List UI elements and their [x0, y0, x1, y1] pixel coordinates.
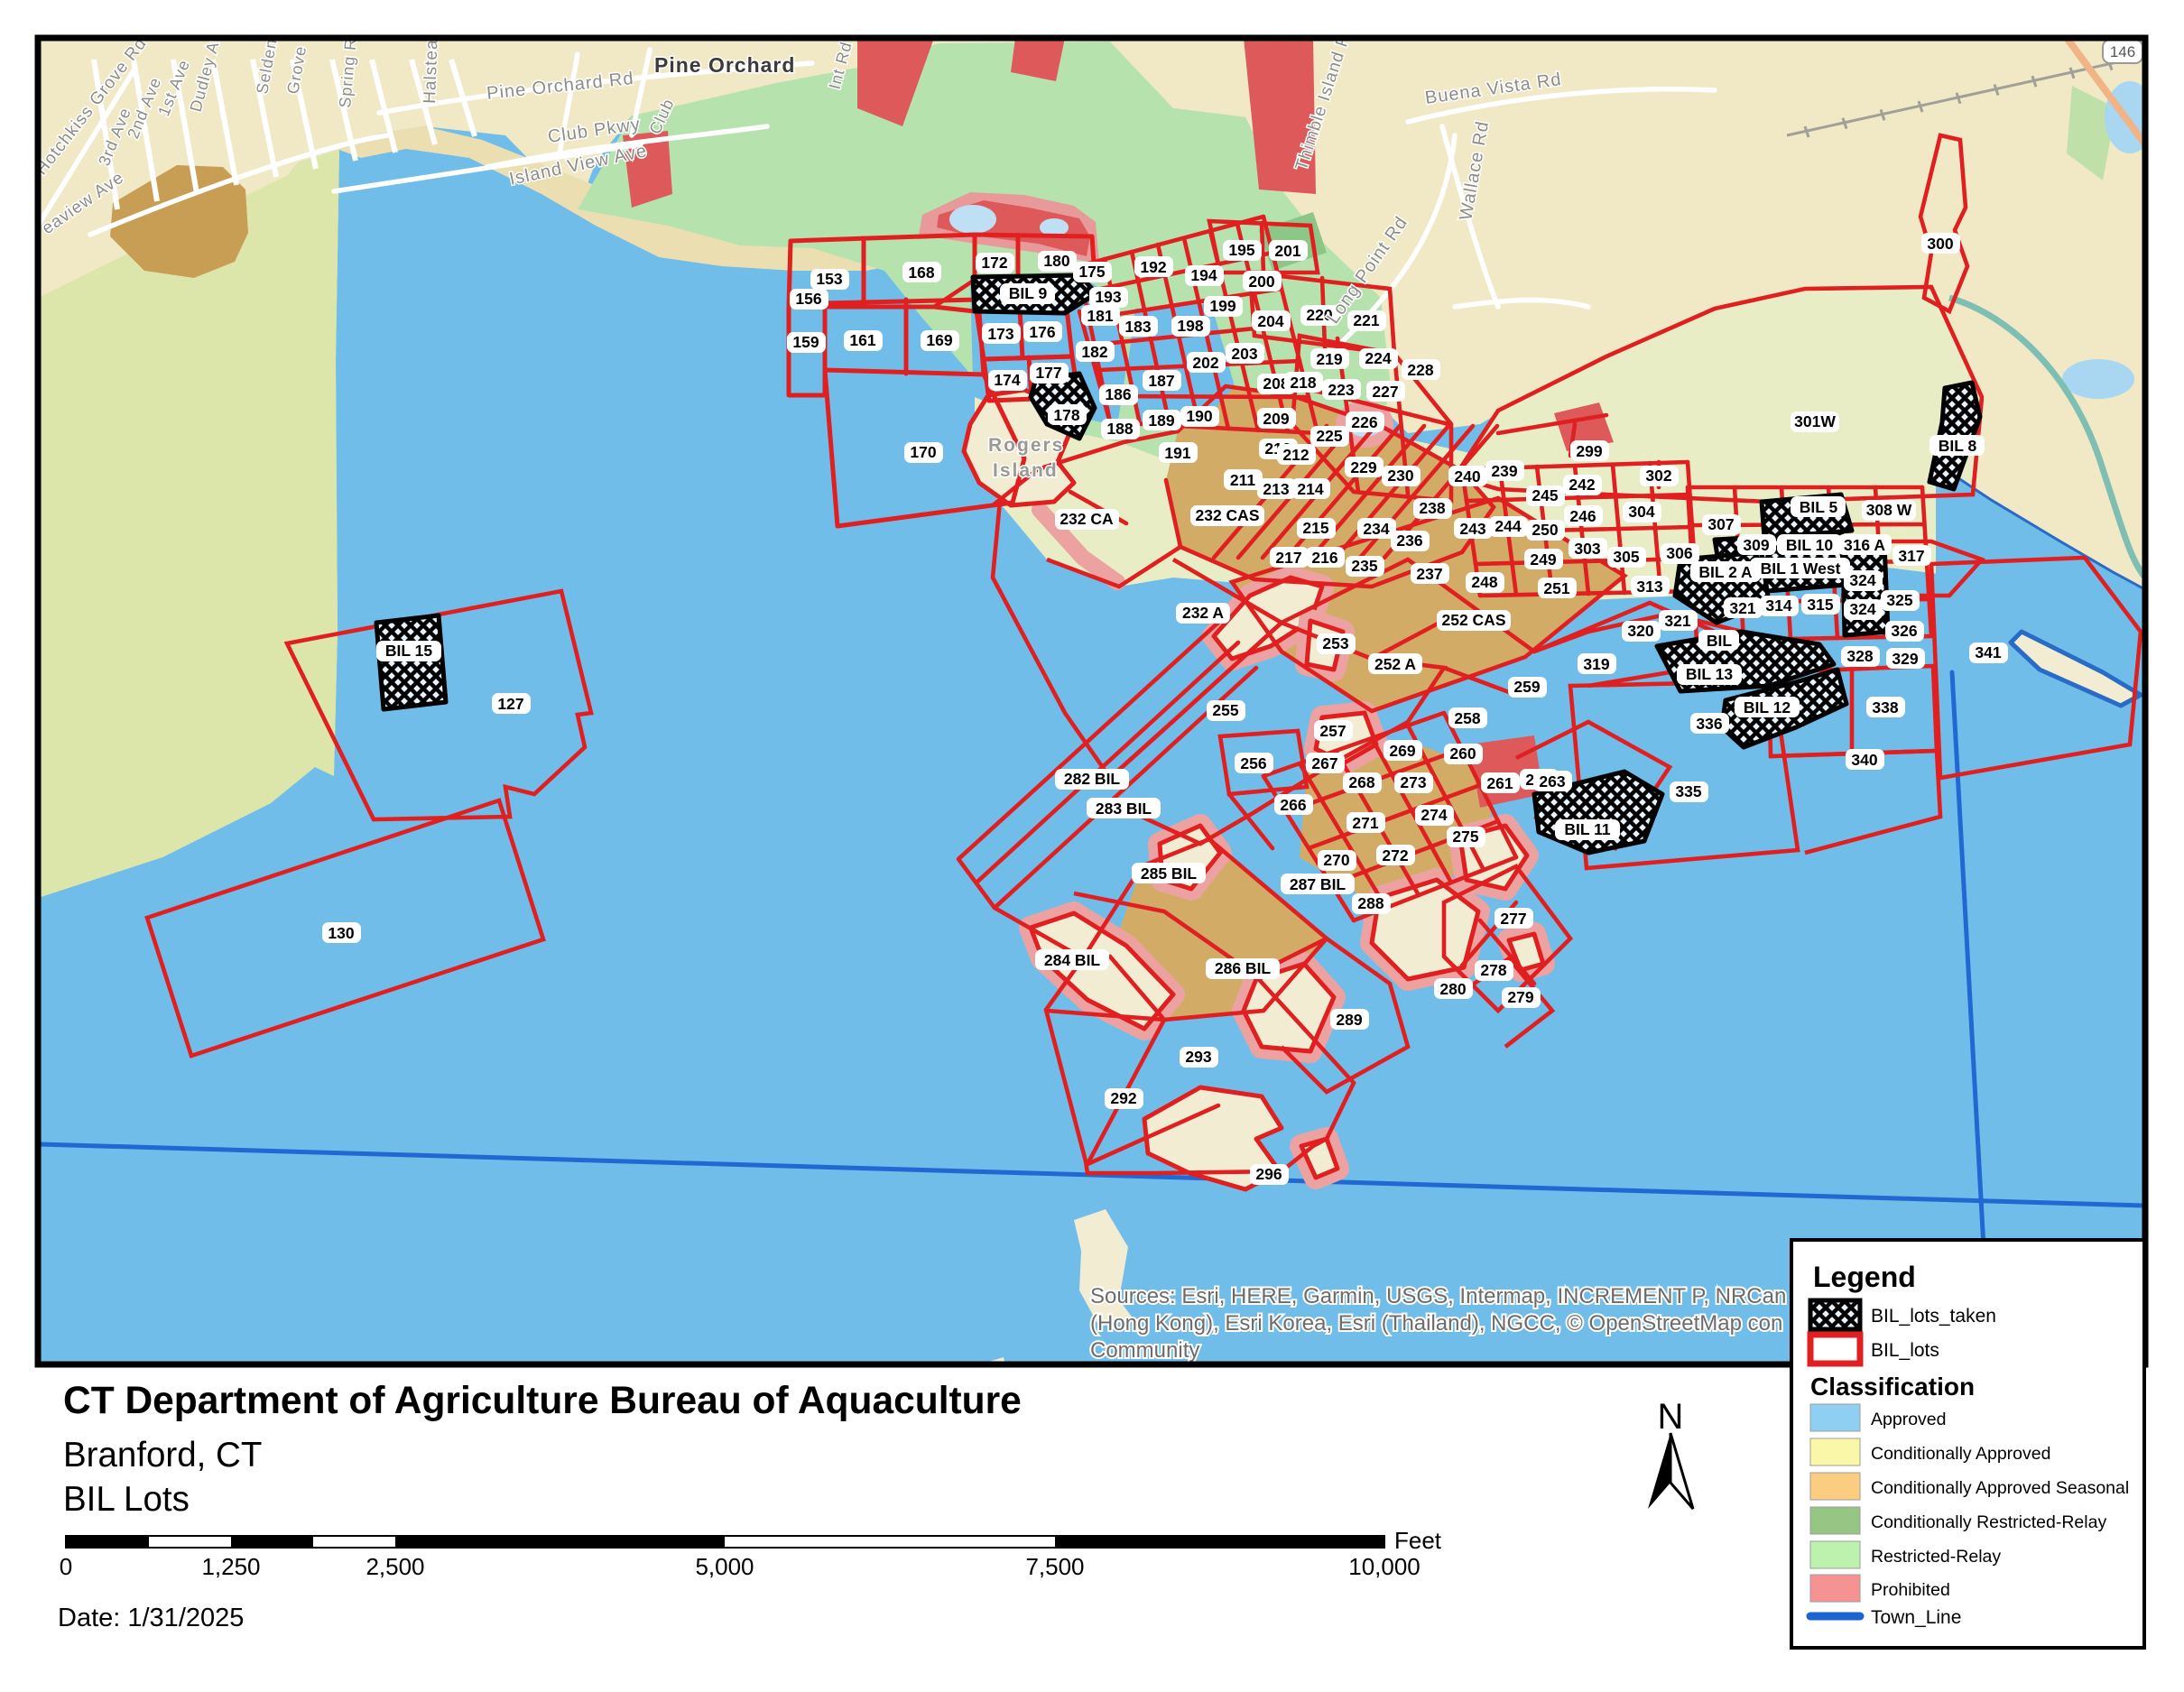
svg-text:Town_Line: Town_Line	[1871, 1607, 1961, 1628]
svg-text:325: 325	[1886, 591, 1912, 609]
svg-text:180: 180	[1043, 252, 1069, 270]
svg-text:181: 181	[1087, 307, 1113, 325]
svg-text:240: 240	[1454, 467, 1480, 485]
svg-text:169: 169	[926, 331, 952, 349]
svg-text:176: 176	[1029, 323, 1055, 341]
svg-text:0: 0	[60, 1553, 72, 1580]
svg-text:BIL 2 A: BIL 2 A	[1698, 563, 1753, 581]
svg-text:194: 194	[1190, 266, 1217, 284]
svg-text:275: 275	[1452, 828, 1478, 846]
svg-text:271: 271	[1352, 814, 1378, 832]
svg-text:229: 229	[1350, 458, 1376, 476]
svg-text:161: 161	[849, 331, 875, 349]
svg-text:326: 326	[1891, 622, 1917, 640]
svg-text:306: 306	[1666, 544, 1692, 562]
svg-text:195: 195	[1228, 241, 1254, 259]
svg-text:187: 187	[1148, 372, 1174, 390]
svg-text:218: 218	[1290, 374, 1316, 392]
svg-text:198: 198	[1177, 317, 1203, 335]
svg-text:BIL Lots: BIL Lots	[63, 1480, 190, 1519]
svg-text:7,500: 7,500	[1025, 1553, 1084, 1580]
svg-text:Sources: Esri, HERE, Garmin, U: Sources: Esri, HERE, Garmin, USGS, Inter…	[1090, 1284, 1786, 1308]
svg-text:203: 203	[1231, 345, 1257, 363]
svg-text:BIL 11: BIL 11	[1564, 820, 1611, 838]
svg-text:Rogers: Rogers	[988, 435, 1064, 456]
svg-text:317: 317	[1898, 547, 1924, 565]
svg-text:246: 246	[1569, 507, 1596, 525]
svg-text:190: 190	[1186, 407, 1212, 425]
svg-text:287 BIL: 287 BIL	[1290, 875, 1346, 893]
svg-text:288: 288	[1357, 894, 1384, 912]
svg-text:266: 266	[1280, 796, 1306, 814]
svg-text:268: 268	[1348, 773, 1374, 791]
svg-text:282 BIL: 282 BIL	[1064, 770, 1121, 788]
svg-text:CT Department of Agriculture B: CT Department of Agriculture Bureau of A…	[63, 1380, 1022, 1422]
svg-text:224: 224	[1365, 349, 1391, 367]
svg-text:336: 336	[1696, 715, 1722, 733]
svg-text:321: 321	[1664, 612, 1690, 630]
svg-text:202: 202	[1192, 354, 1218, 372]
svg-text:301W: 301W	[1794, 412, 1836, 430]
svg-text:10,000: 10,000	[1348, 1553, 1421, 1580]
svg-text:199: 199	[1209, 297, 1235, 315]
svg-text:292: 292	[1110, 1089, 1136, 1107]
svg-text:(Hong Kong), Esri Korea, Esri: (Hong Kong), Esri Korea, Esri (Thailand)…	[1090, 1311, 1782, 1336]
svg-text:234: 234	[1363, 520, 1389, 538]
svg-text:286 BIL: 286 BIL	[1215, 959, 1272, 977]
svg-text:307: 307	[1707, 515, 1734, 533]
svg-text:BIL_lots_taken: BIL_lots_taken	[1871, 1306, 1996, 1327]
svg-text:232 CA: 232 CA	[1060, 510, 1114, 528]
svg-text:228: 228	[1407, 361, 1433, 379]
svg-text:324: 324	[1849, 600, 1875, 618]
svg-text:252 CAS: 252 CAS	[1441, 611, 1505, 629]
svg-text:299: 299	[1576, 442, 1602, 460]
svg-text:156: 156	[795, 290, 821, 308]
svg-text:280: 280	[1439, 980, 1466, 998]
svg-text:235: 235	[1351, 557, 1377, 575]
svg-text:Conditionally Approved Seasona: Conditionally Approved Seasonal	[1871, 1478, 2129, 1498]
svg-text:227: 227	[1372, 383, 1398, 401]
svg-text:293: 293	[1185, 1048, 1211, 1066]
svg-text:219: 219	[1316, 350, 1342, 368]
svg-text:189: 189	[1148, 411, 1174, 430]
svg-text:270: 270	[1323, 851, 1349, 869]
svg-text:245: 245	[1532, 486, 1558, 504]
svg-text:284 BIL: 284 BIL	[1044, 951, 1101, 969]
svg-text:300: 300	[1927, 235, 1953, 253]
svg-text:277: 277	[1500, 910, 1526, 928]
svg-text:213: 213	[1263, 480, 1289, 498]
svg-text:Date: 1/31/2025: Date: 1/31/2025	[58, 1604, 244, 1632]
svg-text:261: 261	[1486, 774, 1513, 792]
svg-text:253: 253	[1322, 634, 1348, 652]
svg-text:315: 315	[1807, 596, 1833, 614]
svg-text:225: 225	[1316, 427, 1342, 445]
svg-text:252 A: 252 A	[1374, 655, 1416, 673]
svg-text:255: 255	[1212, 701, 1238, 719]
svg-text:309: 309	[1743, 536, 1769, 554]
svg-text:BIL: BIL	[1707, 632, 1733, 650]
svg-text:146: 146	[2110, 43, 2135, 60]
svg-text:242: 242	[1569, 476, 1595, 494]
svg-text:153: 153	[816, 270, 842, 288]
svg-text:216: 216	[1311, 549, 1337, 567]
svg-text:BIL_lots: BIL_lots	[1871, 1340, 1939, 1361]
svg-text:212: 212	[1282, 446, 1309, 464]
svg-text:335: 335	[1675, 782, 1701, 800]
svg-text:314: 314	[1765, 596, 1791, 615]
svg-text:Prohibited: Prohibited	[1871, 1580, 1950, 1600]
svg-text:273: 273	[1400, 773, 1426, 791]
svg-text:340: 340	[1851, 751, 1877, 769]
svg-text:177: 177	[1035, 364, 1061, 382]
svg-text:182: 182	[1081, 343, 1107, 361]
svg-text:320: 320	[1627, 622, 1653, 640]
svg-text:174: 174	[994, 371, 1020, 389]
svg-text:308 W: 308 W	[1866, 501, 1912, 519]
svg-text:BIL 5: BIL 5	[1800, 498, 1838, 516]
svg-text:159: 159	[792, 333, 819, 351]
svg-text:BIL 12: BIL 12	[1744, 698, 1791, 717]
svg-text:226: 226	[1351, 413, 1377, 431]
svg-text:Restricted-Relay: Restricted-Relay	[1871, 1547, 2001, 1567]
svg-text:303: 303	[1574, 540, 1600, 558]
svg-text:249: 249	[1530, 550, 1556, 569]
svg-text:267: 267	[1311, 754, 1337, 772]
svg-text:BIL 10: BIL 10	[1786, 536, 1833, 554]
svg-text:272: 272	[1382, 846, 1408, 864]
svg-text:338: 338	[1872, 698, 1898, 717]
svg-text:192: 192	[1140, 258, 1166, 276]
svg-text:313: 313	[1636, 578, 1662, 596]
svg-text:214: 214	[1297, 480, 1323, 498]
svg-text:283 BIL: 283 BIL	[1096, 800, 1152, 818]
svg-text:232 A: 232 A	[1182, 604, 1224, 622]
svg-text:2,500: 2,500	[366, 1553, 424, 1580]
svg-text:Community: Community	[1090, 1338, 1199, 1363]
svg-text:274: 274	[1421, 806, 1447, 824]
svg-text:259: 259	[1513, 678, 1540, 696]
svg-text:211: 211	[1230, 471, 1255, 489]
svg-text:257: 257	[1319, 722, 1346, 740]
svg-text:258: 258	[1454, 709, 1480, 727]
svg-text:289: 289	[1336, 1011, 1362, 1029]
svg-text:244: 244	[1495, 517, 1521, 535]
svg-text:250: 250	[1532, 521, 1558, 539]
svg-text:215: 215	[1302, 519, 1328, 537]
svg-text:Conditionally Restricted-Relay: Conditionally Restricted-Relay	[1871, 1512, 2106, 1532]
svg-text:188: 188	[1106, 420, 1133, 438]
svg-text:296: 296	[1255, 1165, 1282, 1183]
svg-text:304: 304	[1628, 503, 1654, 521]
svg-text:183: 183	[1124, 318, 1151, 336]
svg-text:175: 175	[1078, 263, 1105, 281]
svg-text:232 CAS: 232 CAS	[1195, 506, 1259, 524]
svg-text:173: 173	[987, 325, 1013, 343]
svg-text:178: 178	[1053, 406, 1079, 424]
svg-text:127: 127	[497, 695, 523, 713]
svg-text:239: 239	[1491, 462, 1517, 480]
svg-text:BIL 13: BIL 13	[1686, 665, 1733, 683]
svg-text:191: 191	[1164, 444, 1190, 462]
svg-text:Island: Island	[993, 460, 1059, 481]
svg-text:243: 243	[1459, 520, 1485, 538]
svg-text:1,250: 1,250	[201, 1553, 260, 1580]
svg-text:Approved: Approved	[1871, 1410, 1946, 1429]
svg-text:Pine Orchard: Pine Orchard	[654, 53, 795, 77]
svg-text:319: 319	[1583, 655, 1609, 673]
svg-text:221: 221	[1353, 311, 1379, 329]
svg-text:321: 321	[1729, 599, 1755, 617]
svg-text:279: 279	[1507, 988, 1533, 1006]
svg-text:324: 324	[1849, 571, 1875, 589]
svg-text:5,000: 5,000	[695, 1553, 754, 1580]
svg-text:BIL 9: BIL 9	[1009, 284, 1048, 302]
svg-text:248: 248	[1471, 573, 1497, 591]
svg-text:186: 186	[1105, 385, 1131, 403]
svg-text:209: 209	[1263, 410, 1289, 428]
svg-text:BIL 15: BIL 15	[385, 642, 432, 660]
svg-text:130: 130	[328, 924, 354, 942]
svg-text:Feet: Feet	[1394, 1527, 1442, 1554]
svg-text:260: 260	[1449, 744, 1476, 763]
svg-text:237: 237	[1416, 565, 1442, 583]
svg-text:217: 217	[1275, 549, 1301, 567]
svg-text:251: 251	[1543, 579, 1569, 597]
svg-text:256: 256	[1240, 754, 1266, 772]
svg-text:Legend: Legend	[1813, 1261, 1916, 1293]
svg-text:BIL 1 West: BIL 1 West	[1761, 559, 1841, 578]
svg-text:305: 305	[1613, 548, 1639, 566]
svg-text:204: 204	[1257, 312, 1283, 330]
svg-text:328: 328	[1846, 647, 1873, 665]
svg-text:285 BIL: 285 BIL	[1141, 864, 1198, 883]
svg-text:329: 329	[1892, 650, 1918, 668]
svg-text:278: 278	[1480, 961, 1506, 979]
svg-text:168: 168	[908, 264, 934, 282]
svg-text:200: 200	[1248, 273, 1274, 291]
svg-text:223: 223	[1328, 381, 1354, 399]
svg-text:236: 236	[1396, 532, 1422, 550]
svg-text:BIL 8: BIL 8	[1939, 437, 1977, 455]
svg-text:302: 302	[1645, 467, 1671, 485]
svg-text:170: 170	[910, 443, 936, 461]
svg-text:316 A: 316 A	[1844, 536, 1885, 554]
svg-text:Conditionally Approved: Conditionally Approved	[1871, 1444, 2050, 1464]
svg-text:N: N	[1658, 1397, 1684, 1437]
svg-text:341: 341	[1975, 643, 2001, 661]
svg-text:Branford, CT: Branford, CT	[63, 1436, 262, 1475]
svg-text:238: 238	[1419, 499, 1445, 517]
svg-text:193: 193	[1095, 288, 1121, 306]
svg-text:201: 201	[1274, 242, 1300, 260]
svg-text:269: 269	[1389, 742, 1415, 760]
svg-text:263: 263	[1539, 772, 1565, 791]
svg-text:172: 172	[981, 254, 1007, 272]
svg-text:230: 230	[1387, 467, 1413, 485]
svg-text:Classification: Classification	[1810, 1373, 1975, 1401]
